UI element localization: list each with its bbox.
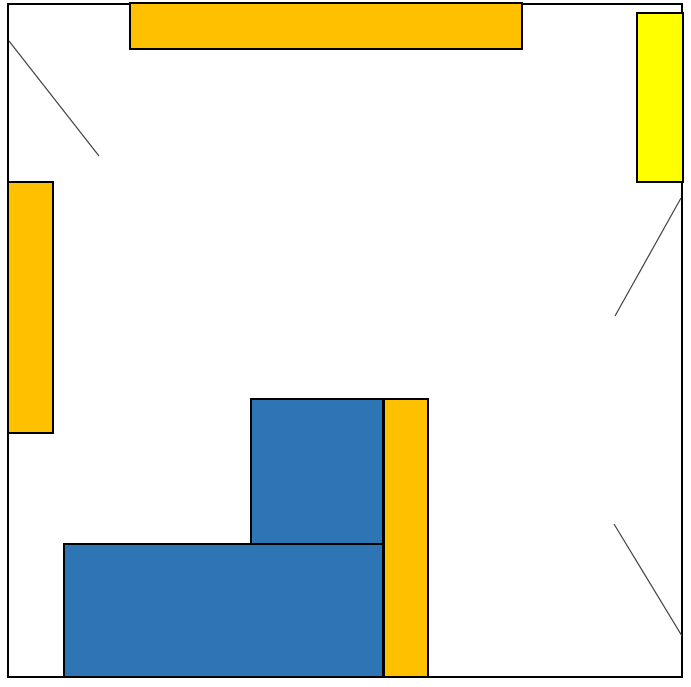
lower-blue-rect [63, 543, 384, 678]
left-vertical-orange-rect [7, 181, 54, 434]
upper-blue-rect [250, 398, 384, 546]
top-right-yellow-rect [636, 12, 684, 183]
top-horizontal-orange-bar [129, 2, 523, 50]
drawing-canvas [0, 0, 691, 687]
right-vertical-orange-bar [383, 398, 429, 678]
